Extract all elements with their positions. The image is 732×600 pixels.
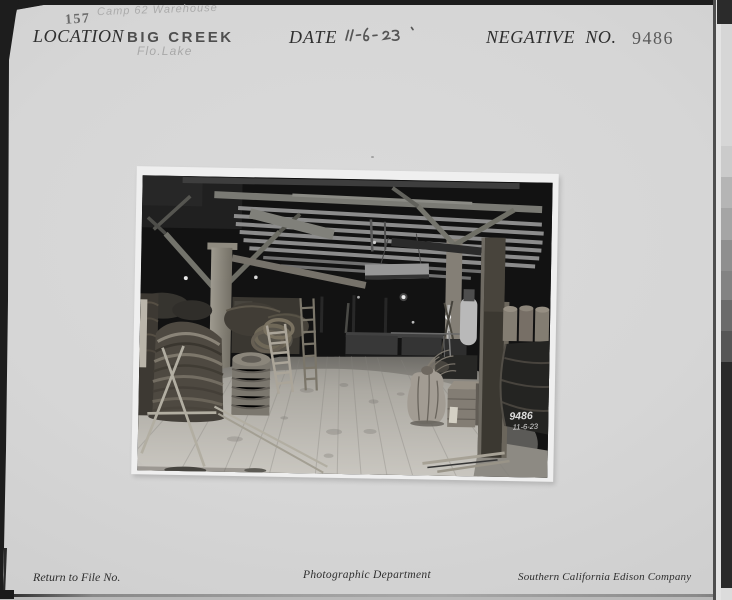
svg-text:11-6-23: 11-6-23 (512, 422, 538, 432)
svg-text:9486: 9486 (509, 410, 533, 423)
